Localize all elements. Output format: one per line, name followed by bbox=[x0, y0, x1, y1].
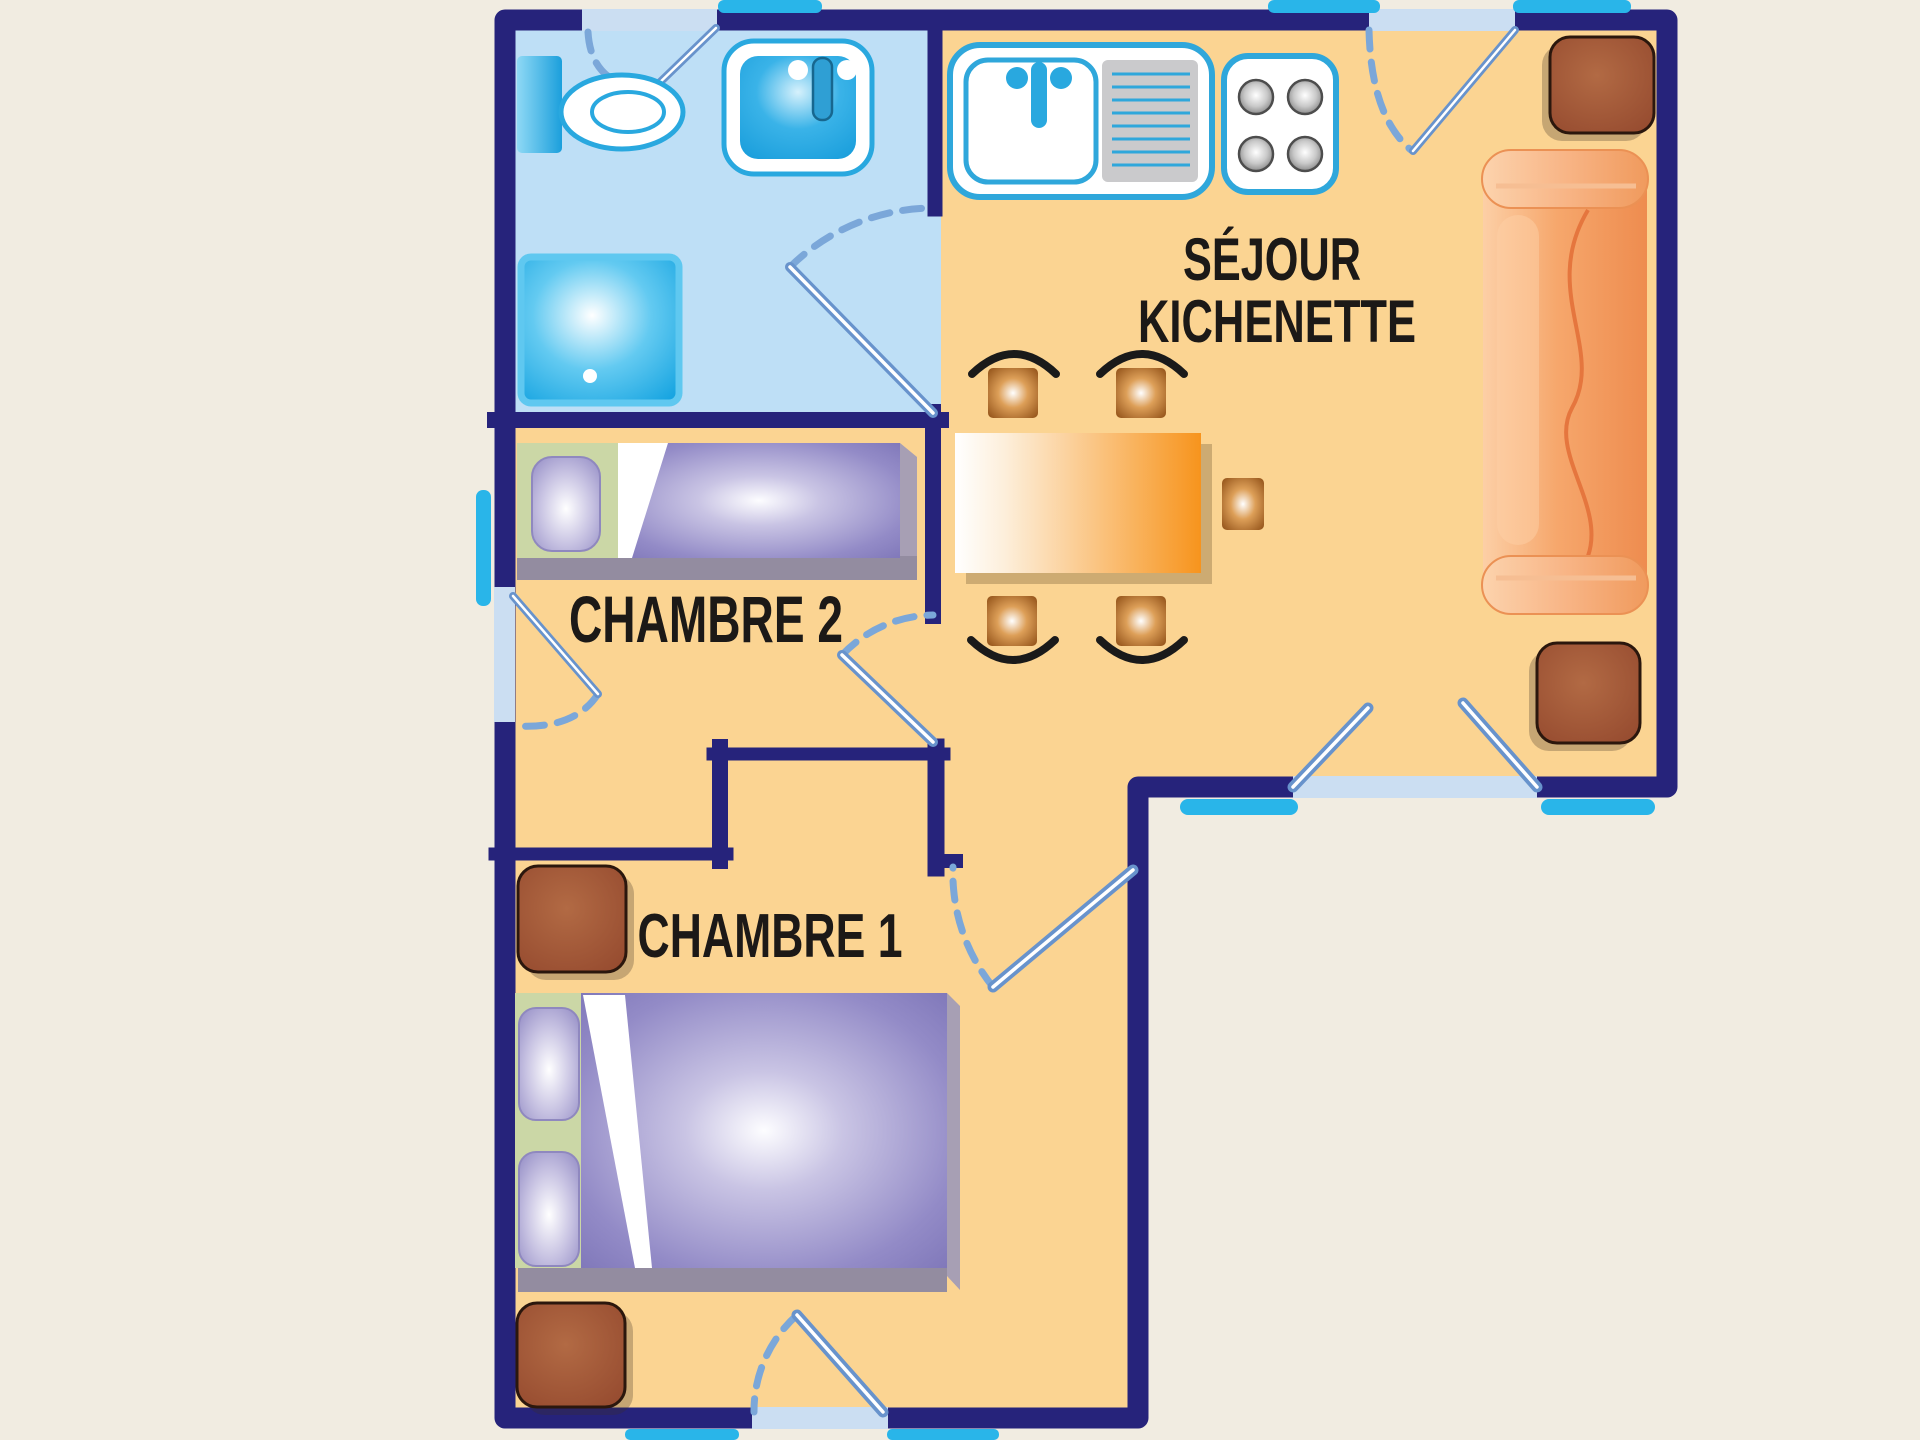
sill-icon bbox=[1180, 799, 1298, 815]
sofa-icon bbox=[1482, 150, 1648, 614]
sejour-label-line2: KICHENETTE bbox=[1138, 288, 1416, 355]
side-table-icon bbox=[1529, 643, 1640, 751]
chair-icon bbox=[1116, 368, 1166, 418]
chair-icon bbox=[987, 596, 1037, 646]
side-table-icon bbox=[1542, 37, 1654, 141]
double-bed-icon bbox=[515, 993, 960, 1292]
sill-icon bbox=[1513, 0, 1631, 13]
chambre1-door-opening bbox=[752, 1407, 888, 1429]
sill-icon bbox=[718, 0, 822, 13]
sill-icon bbox=[1541, 799, 1655, 815]
bathroom-sink-icon bbox=[724, 41, 872, 174]
floor-plan: SÉJOUR KICHENETTE CHAMBRE 2 CHAMBRE 1 bbox=[0, 0, 1920, 1440]
kitchen-sink-icon bbox=[950, 45, 1212, 197]
sill-icon bbox=[887, 1429, 999, 1440]
stove-icon bbox=[1224, 56, 1336, 192]
sejour-label-line1: SÉJOUR bbox=[1183, 226, 1361, 293]
stool-icon bbox=[1222, 478, 1264, 530]
chair-icon bbox=[1116, 596, 1166, 646]
floor-plan-page: SÉJOUR KICHENETTE CHAMBRE 2 CHAMBRE 1 bbox=[0, 0, 1920, 1440]
sill-icon bbox=[625, 1429, 739, 1440]
kitchen-fixtures bbox=[950, 45, 1336, 197]
chambre1-label: CHAMBRE 1 bbox=[638, 902, 903, 971]
sejour-window-opening bbox=[1369, 9, 1515, 31]
bathroom-window-opening bbox=[582, 9, 717, 31]
chambre2-label: CHAMBRE 2 bbox=[569, 582, 843, 656]
dining-table-icon bbox=[955, 433, 1201, 573]
sill-icon bbox=[1268, 0, 1380, 13]
sill-icon bbox=[476, 490, 491, 606]
chambre2-window-opening bbox=[494, 587, 515, 722]
nightstand-icon bbox=[517, 1303, 633, 1415]
shower-icon bbox=[521, 257, 679, 403]
entrance-door-opening bbox=[1293, 776, 1537, 798]
single-bed-icon bbox=[517, 443, 917, 580]
nightstand-icon bbox=[518, 866, 634, 980]
chair-icon bbox=[988, 368, 1038, 418]
